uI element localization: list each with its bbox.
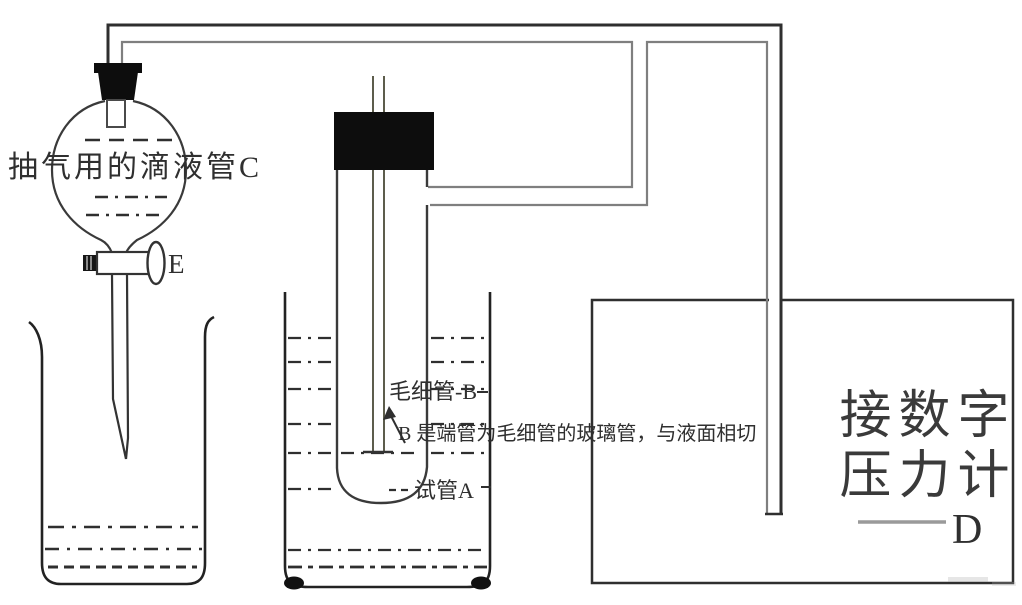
dropping-funnel: E — [52, 63, 186, 459]
left-beaker — [29, 317, 214, 584]
capillary-note: B 是端管为毛细管的玻璃管，与液面相切 — [398, 422, 756, 445]
gauge-label-line2: 压力计 — [839, 448, 1016, 505]
stopcock-label: E — [168, 249, 185, 279]
left-beaker-outline — [29, 317, 214, 584]
beaker-foot-left — [284, 577, 304, 590]
capillary-label: 毛细管-B — [389, 379, 477, 404]
gauge-connector-label: D — [952, 507, 982, 553]
gauge-label-line1: 接数字 — [839, 388, 1016, 445]
stopcock — [83, 242, 165, 284]
funnel-label: 抽气用的滴液管C — [8, 151, 262, 184]
beaker-foot-right — [471, 577, 491, 590]
tube-box-mask — [769, 297, 780, 318]
funnel-stopper — [98, 72, 138, 100]
apparatus-diagram: 接数字 压力计 D E — [0, 0, 1022, 605]
test-tube-stopper — [334, 112, 434, 170]
stopcock-barrel — [97, 252, 149, 274]
stopcock-nut — [83, 255, 97, 271]
test-tube-label: 试管A — [414, 478, 474, 503]
funnel-inner-tube — [107, 100, 125, 127]
funnel-stem — [112, 274, 128, 459]
left-beaker-water-lines — [45, 527, 202, 567]
funnel-stopper-rim — [94, 63, 142, 73]
stopcock-handle — [148, 242, 165, 284]
